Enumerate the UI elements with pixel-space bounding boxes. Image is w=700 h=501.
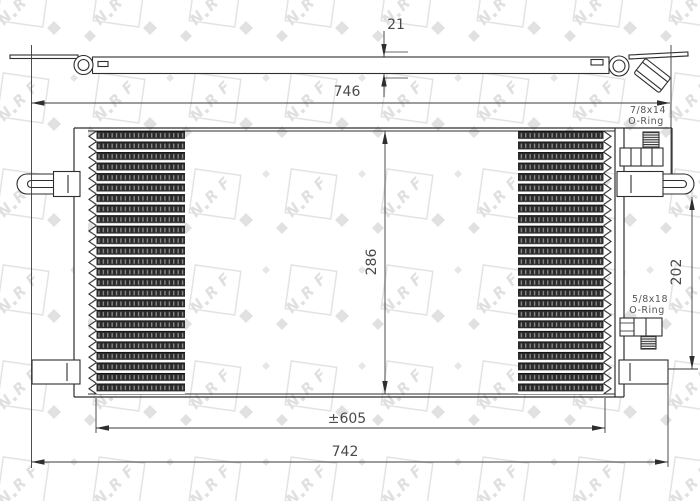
bottom-port-seal-label: O-Ring <box>629 305 664 316</box>
dim-width-top-label: 746 <box>334 84 361 100</box>
dim-ports-height-label: 202 <box>669 259 685 286</box>
bracket-bottom-right <box>619 360 668 384</box>
bracket-top-right <box>617 172 694 197</box>
dim-width-bottom-label: 742 <box>332 444 359 460</box>
left-port-ring <box>74 56 93 75</box>
bracket-top-left <box>17 172 80 197</box>
top-port-seal-label: O-Ring <box>628 116 663 127</box>
technical-drawing: N R F <box>0 0 700 501</box>
dim-core-width-label: ±605 <box>328 411 366 427</box>
fin-block-right <box>518 131 604 394</box>
threaded-stub-bottom <box>641 336 656 349</box>
fin-block-left <box>96 131 185 394</box>
fin-edge-left <box>88 131 97 394</box>
top-port-thread-label: 7/8x14 <box>630 105 666 116</box>
dim-height-label: 286 <box>364 249 380 276</box>
fin-edge-right <box>604 131 613 394</box>
right-tank <box>615 129 625 397</box>
threaded-stub-top <box>643 132 659 148</box>
dim-thickness-label: 21 <box>387 17 405 33</box>
condenser-drawing-canvas: N R F <box>0 0 700 501</box>
condenser-profile-bar <box>93 57 610 74</box>
left-tank <box>75 129 89 397</box>
bracket-bottom-left <box>32 360 80 384</box>
right-port-ring <box>609 56 629 76</box>
bottom-port-thread-label: 5/8x18 <box>632 294 668 305</box>
